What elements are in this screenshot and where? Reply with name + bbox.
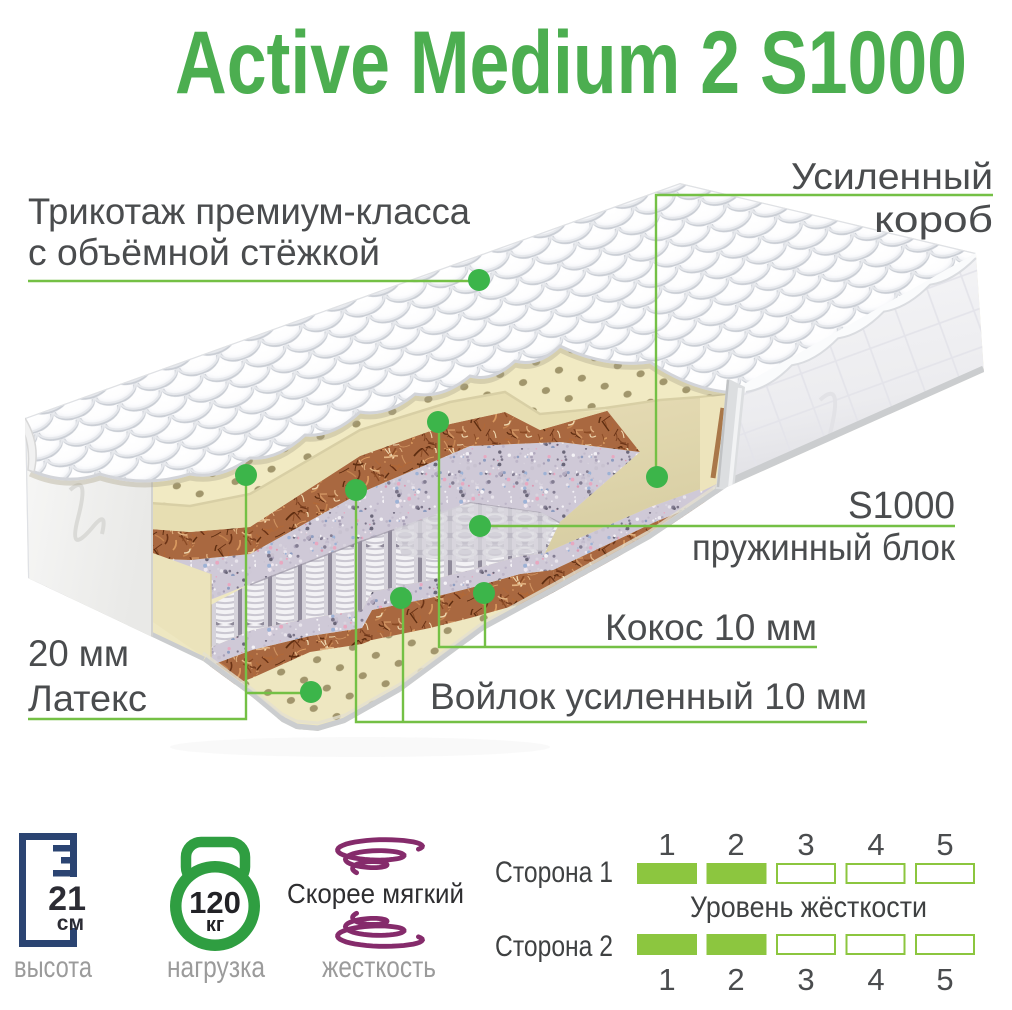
svg-text:S1000: S1000 <box>848 485 955 527</box>
svg-text:2: 2 <box>727 827 744 862</box>
svg-text:Уровень жёсткости: Уровень жёсткости <box>690 891 927 924</box>
svg-text:Сторона 1: Сторона 1 <box>495 856 613 889</box>
svg-text:1: 1 <box>658 962 675 997</box>
svg-text:4: 4 <box>867 827 884 862</box>
svg-text:высота: высота <box>14 951 92 984</box>
svg-text:Усиленный: Усиленный <box>791 156 993 197</box>
svg-text:кг: кг <box>206 914 224 936</box>
svg-text:2: 2 <box>727 962 744 997</box>
svg-text:пружинный блок: пружинный блок <box>692 527 956 568</box>
svg-text:Active Medium 2 S1000: Active Medium 2 S1000 <box>175 13 967 113</box>
svg-text:Кокос 10 мм: Кокос 10 мм <box>605 607 817 648</box>
svg-text:с объёмной стёжкой: с объёмной стёжкой <box>28 232 380 273</box>
svg-text:1: 1 <box>658 827 675 862</box>
svg-text:нагрузка: нагрузка <box>167 951 265 984</box>
svg-text:короб: короб <box>874 199 993 240</box>
svg-text:Войлок усиленный 10 мм: Войлок усиленный 10 мм <box>430 676 867 717</box>
svg-text:5: 5 <box>936 827 953 862</box>
svg-text:Латекс: Латекс <box>28 678 147 719</box>
svg-text:4: 4 <box>867 962 884 997</box>
svg-text:3: 3 <box>797 827 814 862</box>
svg-text:3: 3 <box>797 962 814 997</box>
svg-text:Трикотаж премиум-класса: Трикотаж премиум-класса <box>28 191 470 232</box>
svg-text:жесткость: жесткость <box>322 951 436 984</box>
svg-text:20 мм: 20 мм <box>28 633 129 674</box>
svg-text:Сторона 2: Сторона 2 <box>495 930 613 963</box>
svg-text:см: см <box>57 912 84 935</box>
svg-text:Скорее мягкий: Скорее мягкий <box>287 878 464 909</box>
svg-text:5: 5 <box>936 962 953 997</box>
